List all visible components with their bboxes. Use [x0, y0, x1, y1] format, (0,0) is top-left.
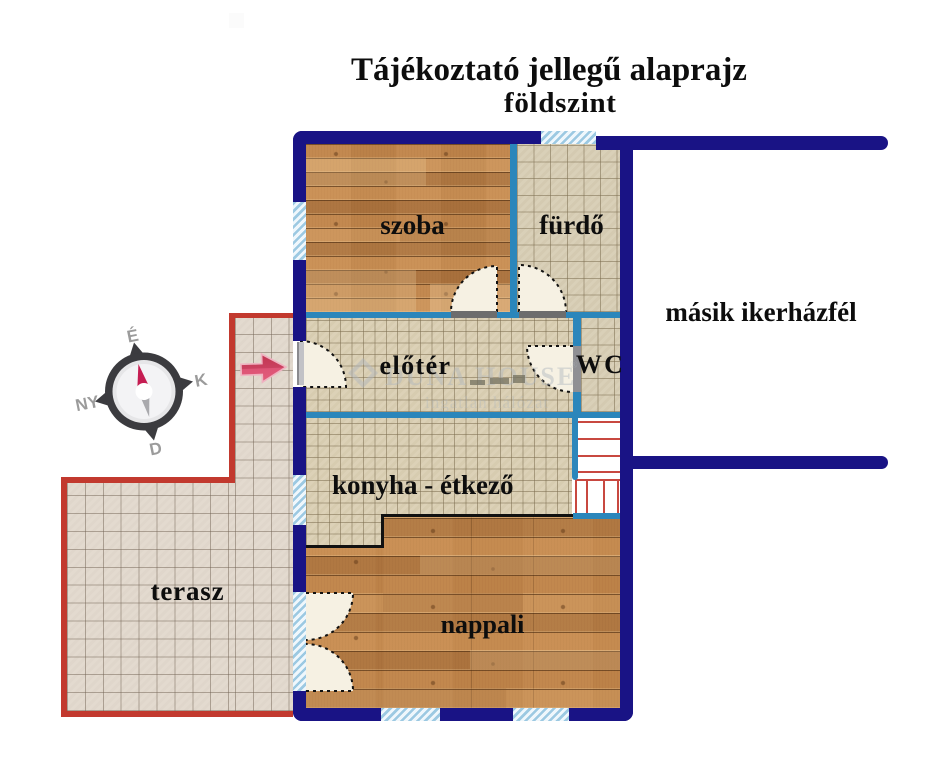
svg-text:É: É: [125, 326, 140, 347]
svg-text:NY: NY: [74, 392, 102, 415]
svg-text:D: D: [148, 438, 164, 459]
svg-text:K: K: [193, 370, 210, 391]
svg-text:ingatlan hálózat: ingatlan hálózat: [425, 393, 549, 412]
